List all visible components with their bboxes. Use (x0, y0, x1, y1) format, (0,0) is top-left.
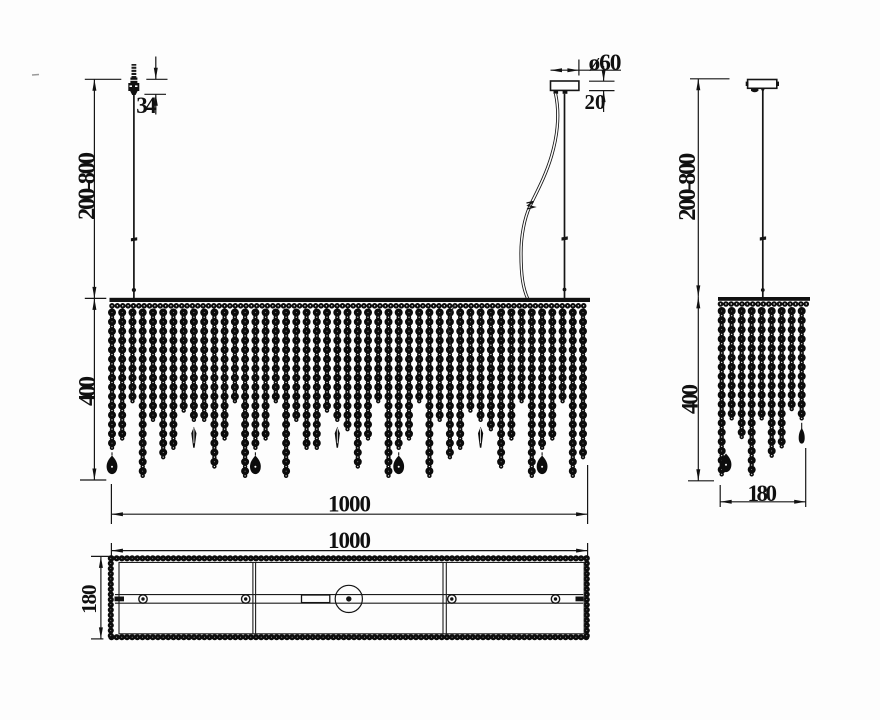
svg-text:1000: 1000 (328, 492, 371, 517)
svg-text:20: 20 (585, 90, 606, 114)
svg-text:34: 34 (136, 93, 157, 118)
svg-text:400: 400 (677, 384, 702, 414)
svg-text:1000: 1000 (328, 528, 371, 553)
svg-text:200-800: 200-800 (74, 152, 101, 220)
svg-text:180: 180 (77, 584, 101, 614)
svg-text:200-800: 200-800 (674, 153, 701, 221)
svg-text:400: 400 (75, 376, 101, 406)
svg-text:180: 180 (748, 481, 778, 506)
